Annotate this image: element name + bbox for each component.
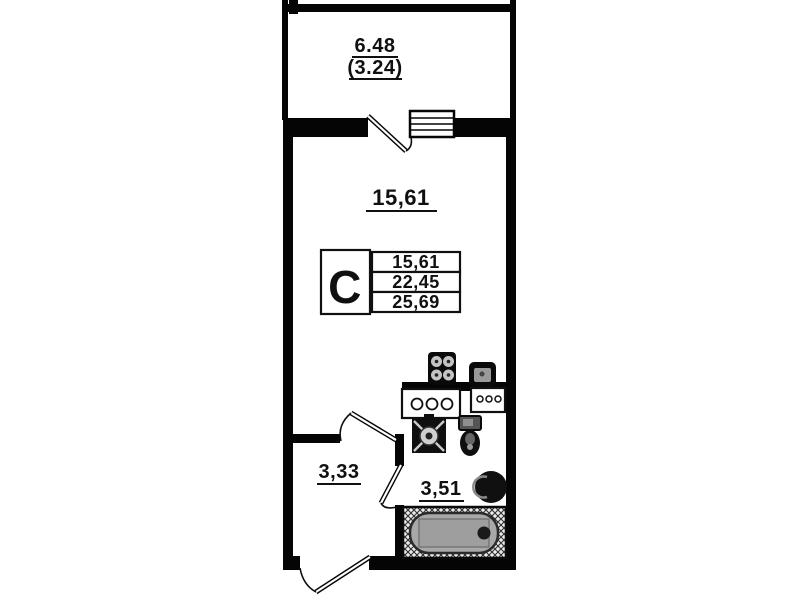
bathtub-drain (478, 527, 491, 540)
svg-text:15,61: 15,61 (372, 185, 430, 210)
appliance-unit (471, 388, 505, 412)
svg-text:6.48: 6.48 (355, 35, 396, 57)
apartment-type-letter: С (328, 261, 362, 313)
entrance-door-swing (300, 568, 316, 592)
svg-text:3,51: 3,51 (421, 478, 462, 500)
living-area-value: 15,61 (392, 252, 440, 272)
bathtub-icon (403, 507, 506, 558)
bathroom-door (381, 465, 401, 508)
svg-text:3,33: 3,33 (319, 461, 360, 483)
kitchen-sink-icon (469, 362, 496, 387)
floor-plan-drawing: С 15,61 22,45 25,69 6.48 (3.24) 15,61 3,… (0, 0, 799, 600)
toilet-icon (459, 416, 481, 456)
total-area-balcony-value: 25,69 (392, 292, 440, 312)
balcony-window (410, 111, 454, 137)
entrance-door (300, 557, 370, 592)
balcony-door (368, 116, 411, 151)
washbasin-icon (412, 414, 446, 453)
balcony-area-label: 6.48 (3.24) (347, 35, 402, 79)
hallway-area-label: 3,33 (317, 461, 361, 484)
kitchen-counter (402, 389, 460, 418)
pipe-riser-icon (473, 471, 507, 503)
apartment-info-table: С 15,61 22,45 25,69 (321, 250, 460, 314)
room-door-swing (340, 413, 351, 441)
total-area-value: 22,45 (392, 272, 440, 292)
room-door (340, 413, 396, 441)
balcony-coefficient-label: (3.24) (347, 57, 402, 79)
bathroom-area-label: 3,51 (419, 478, 464, 501)
floor-plan: С 15,61 22,45 25,69 6.48 (3.24) 15,61 3,… (0, 0, 799, 600)
stove-icon (428, 352, 456, 385)
living-room-area-label: 15,61 (366, 185, 437, 211)
